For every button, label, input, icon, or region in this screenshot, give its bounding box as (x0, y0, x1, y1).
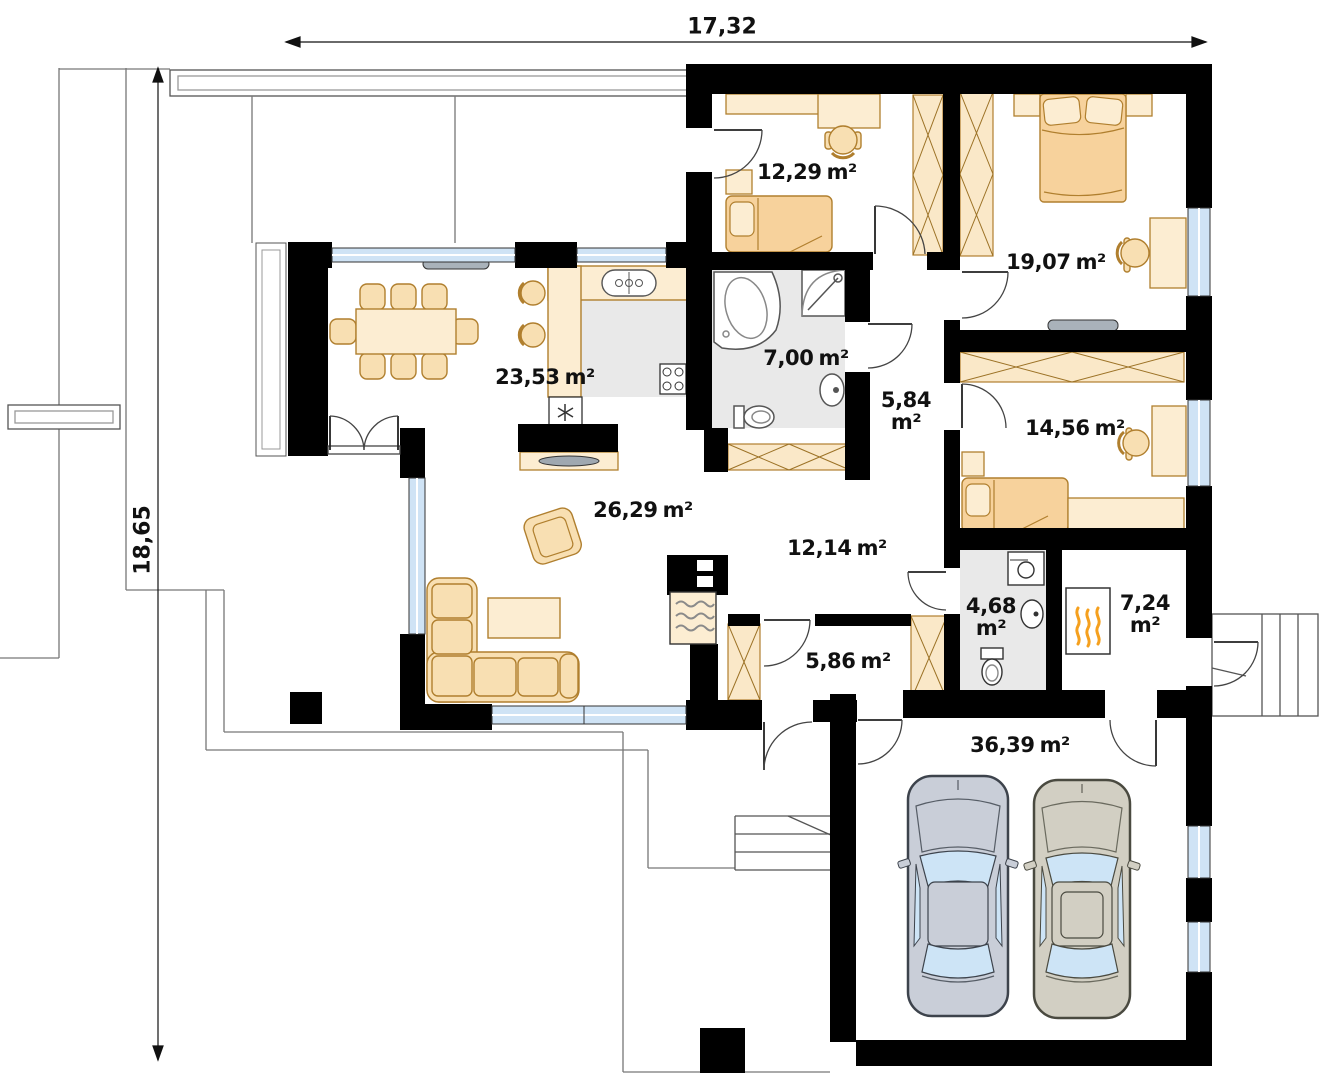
door-garage-from-boiler (1110, 720, 1156, 766)
low-cabinet (1068, 498, 1184, 532)
room-label-wc: 4,68m² (966, 595, 1016, 639)
porch-column (700, 1028, 745, 1073)
room-label-entry: 5,86m² (805, 649, 891, 673)
door-boiler-exterior (1214, 642, 1258, 686)
dining-table (356, 309, 456, 354)
single-bed (726, 196, 832, 252)
window (1188, 922, 1210, 972)
french-door-terrace (328, 416, 400, 454)
armchair (521, 505, 583, 566)
door-garage-from-entry (858, 720, 902, 764)
office-chair (825, 126, 861, 158)
pergola-beam (170, 70, 702, 96)
room-label-bathroom: 7,00m² (763, 346, 849, 370)
door-wc (908, 572, 946, 610)
window (1188, 208, 1210, 296)
terrace-column (290, 692, 322, 724)
radiator (1048, 320, 1118, 331)
wardrobe (913, 95, 943, 255)
toilet (981, 648, 1003, 685)
room-label-hall: 12,14m² (787, 536, 887, 560)
room-label-office-bedroom: 12,29m² (757, 160, 857, 184)
nightstand (726, 170, 752, 194)
window-band (256, 243, 286, 456)
room-label-corridor: 5,84m² (881, 389, 931, 433)
coffee-table (488, 598, 560, 638)
car-right (1023, 780, 1140, 1018)
wardrobe (911, 616, 947, 700)
office-chair (1117, 238, 1149, 272)
window (1188, 826, 1210, 878)
door-master-bedroom (962, 272, 1008, 318)
window (1188, 400, 1210, 486)
master-bedroom-furniture (1014, 94, 1186, 331)
double-bed (1040, 94, 1126, 202)
nightstand (1014, 94, 1040, 116)
wardrobe (728, 624, 760, 700)
door-child-bedroom (962, 384, 1006, 428)
washbasin (820, 374, 844, 406)
entry-steps (735, 816, 833, 870)
dining-set (330, 284, 478, 379)
room-label-master-bedroom: 19,07m² (1006, 250, 1106, 274)
washing-machine (1008, 552, 1044, 585)
window (577, 248, 666, 262)
dimension-height-label: 18,65 (131, 505, 156, 575)
door-bathroom (868, 324, 912, 368)
desk (1152, 406, 1186, 476)
room-label-living-room: 26,29m² (593, 498, 693, 522)
side-steps (1212, 614, 1318, 716)
desk (1150, 218, 1186, 288)
wardrobe (960, 352, 1184, 382)
window (409, 478, 425, 634)
single-bed (962, 478, 1068, 532)
floor-plan: 17,32 18,65 12,29m² 19,07m² 23,53m² 7,00… (0, 0, 1332, 1080)
nightstand (962, 452, 984, 476)
floor-plan-drawing (0, 0, 1332, 1080)
cooktop (660, 364, 686, 394)
dimension-width-label: 17,32 (687, 15, 757, 40)
car-left (897, 776, 1018, 1016)
door-main-entrance (764, 722, 812, 770)
living-room-furniture (427, 452, 618, 702)
toilet (734, 406, 774, 428)
window (492, 706, 686, 724)
bar-stool (521, 281, 545, 305)
room-label-child-bedroom: 14,56m² (1025, 416, 1125, 440)
washbasin (1021, 600, 1043, 628)
window (332, 248, 515, 262)
boiler (1066, 588, 1110, 654)
corner-sofa (427, 578, 579, 702)
side-beam (8, 405, 120, 429)
room-label-garage: 36,39m² (970, 733, 1070, 757)
tv (539, 456, 599, 466)
wardrobe (728, 444, 850, 470)
wardrobe (960, 92, 993, 256)
nightstand (1126, 94, 1152, 116)
room-label-boiler-room: 7,24m² (1120, 592, 1170, 636)
room-label-kitchen-dining: 23,53m² (495, 365, 595, 389)
door-entry-hall (764, 620, 810, 666)
bar-stool (521, 323, 545, 347)
